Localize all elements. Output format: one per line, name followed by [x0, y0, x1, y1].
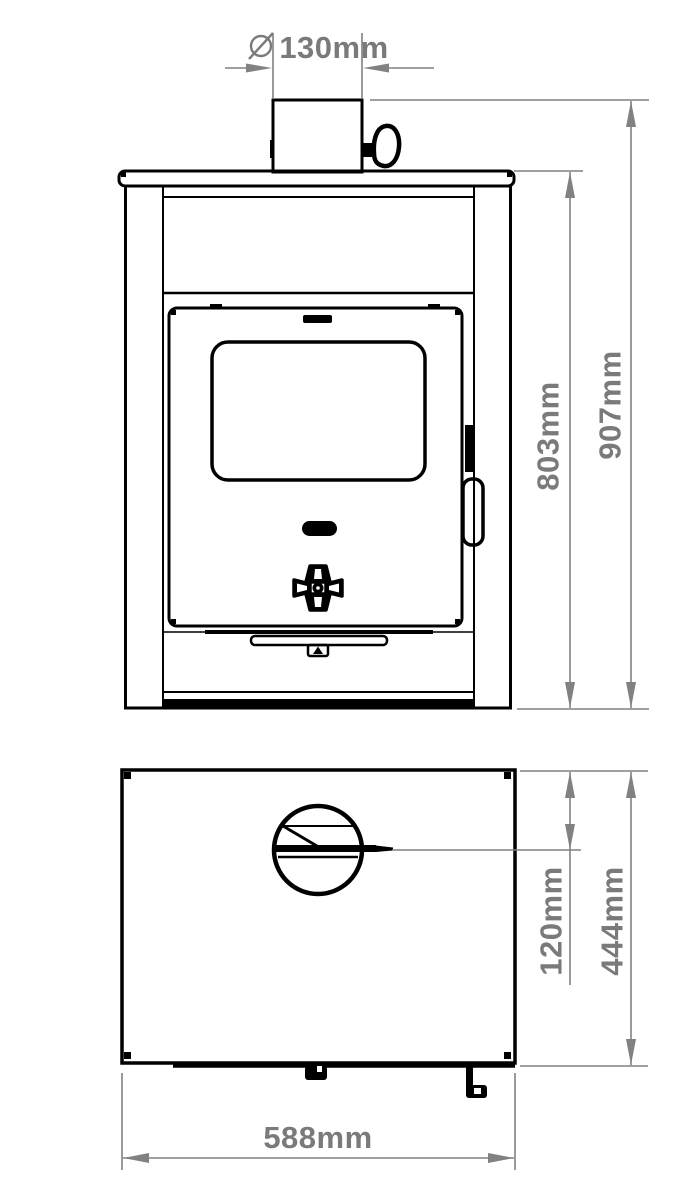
arrow-down-icon [626, 1039, 636, 1065]
door-corner-br [455, 619, 460, 624]
rear-fittings [305, 1063, 487, 1098]
damper-stub [361, 143, 372, 157]
stove-base [163, 632, 474, 708]
rear-center-latch-notch [317, 1066, 322, 1072]
arrow-down-icon [565, 682, 575, 708]
door-hinge-left [210, 304, 222, 309]
rear-center-latch [305, 1066, 327, 1080]
air-control-knob [294, 566, 342, 610]
dim-label-flue-diameter: 130mm [279, 30, 388, 65]
arrow-up-icon [626, 101, 636, 127]
stove-door [169, 304, 483, 626]
door-corner-tl [171, 310, 176, 315]
knob-slit-top [314, 569, 322, 579]
stove-technical-drawing: 130mm 907mm 803mm 444mm 120mm [0, 0, 700, 1200]
plinth-bar [163, 699, 474, 708]
stove-body [126, 186, 511, 708]
arrow-down-icon [565, 824, 575, 850]
arrow-up-icon [626, 772, 636, 798]
front-view [119, 100, 514, 708]
dim-label-flue-handle-offset: 120mm [534, 866, 569, 975]
body-outline [126, 186, 511, 708]
arrow-left-icon [123, 1153, 149, 1163]
door-corner-bl [171, 619, 176, 624]
dim-label-body-height: 803mm [531, 381, 566, 490]
top-view-corner-tr [504, 772, 511, 779]
top-view-outline [122, 770, 515, 1063]
dimension-width: 588mm [122, 1073, 515, 1170]
top-plate-corner-left [121, 172, 126, 177]
flue-pipe-notch [270, 140, 274, 158]
arrow-right-icon [246, 64, 272, 73]
door-corner-tr [455, 310, 460, 315]
damper-knob [374, 126, 399, 166]
dim-label-depth: 444mm [595, 866, 630, 975]
top-view-corner-br [504, 1052, 511, 1059]
arrow-up-icon [565, 172, 575, 198]
flue-pipe [273, 100, 362, 172]
top-plate-corner-right [507, 172, 512, 177]
door-top-vent [303, 315, 332, 323]
dimension-flue-handle-offset: 120mm [392, 772, 581, 985]
ash-drawer-tab-arrow [313, 647, 323, 655]
dim-label-width: 588mm [263, 1120, 372, 1155]
door-hinge-right [428, 304, 440, 309]
damper-handle-tip [376, 846, 393, 853]
dimension-flue-diameter: 130mm [225, 30, 434, 98]
door-glass-window [212, 342, 425, 480]
dimension-body-height: 803mm [514, 171, 583, 708]
knob-center-dot [316, 586, 320, 590]
ash-drawer-front [251, 636, 387, 645]
damper-handle-bar [273, 845, 376, 852]
arrow-right-icon [488, 1153, 514, 1163]
rear-bracket-notch [474, 1088, 481, 1094]
knob-slit-bottom [314, 597, 322, 607]
flue-collar [270, 100, 399, 172]
arrow-up-icon [565, 772, 575, 798]
top-view [122, 770, 515, 1098]
top-view-corner-tl [124, 772, 131, 779]
arrow-down-icon [626, 682, 636, 708]
flue-opening [273, 806, 393, 894]
door-badge [302, 521, 337, 536]
top-view-corner-bl [124, 1052, 131, 1059]
handle-latch-plate [465, 425, 474, 472]
dim-label-total-height: 907mm [593, 350, 628, 459]
